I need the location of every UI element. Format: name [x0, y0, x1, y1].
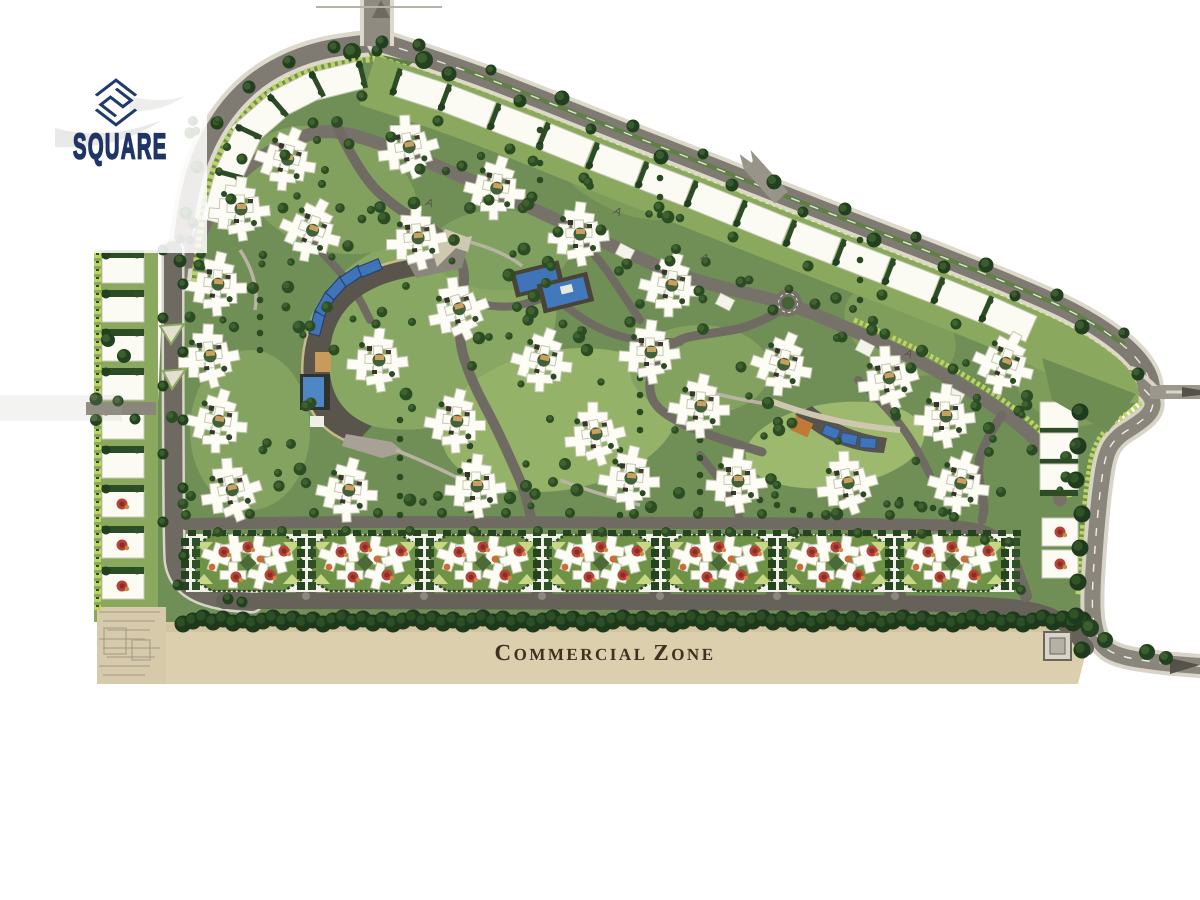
svg-text:SQUARE: SQUARE — [73, 126, 168, 167]
